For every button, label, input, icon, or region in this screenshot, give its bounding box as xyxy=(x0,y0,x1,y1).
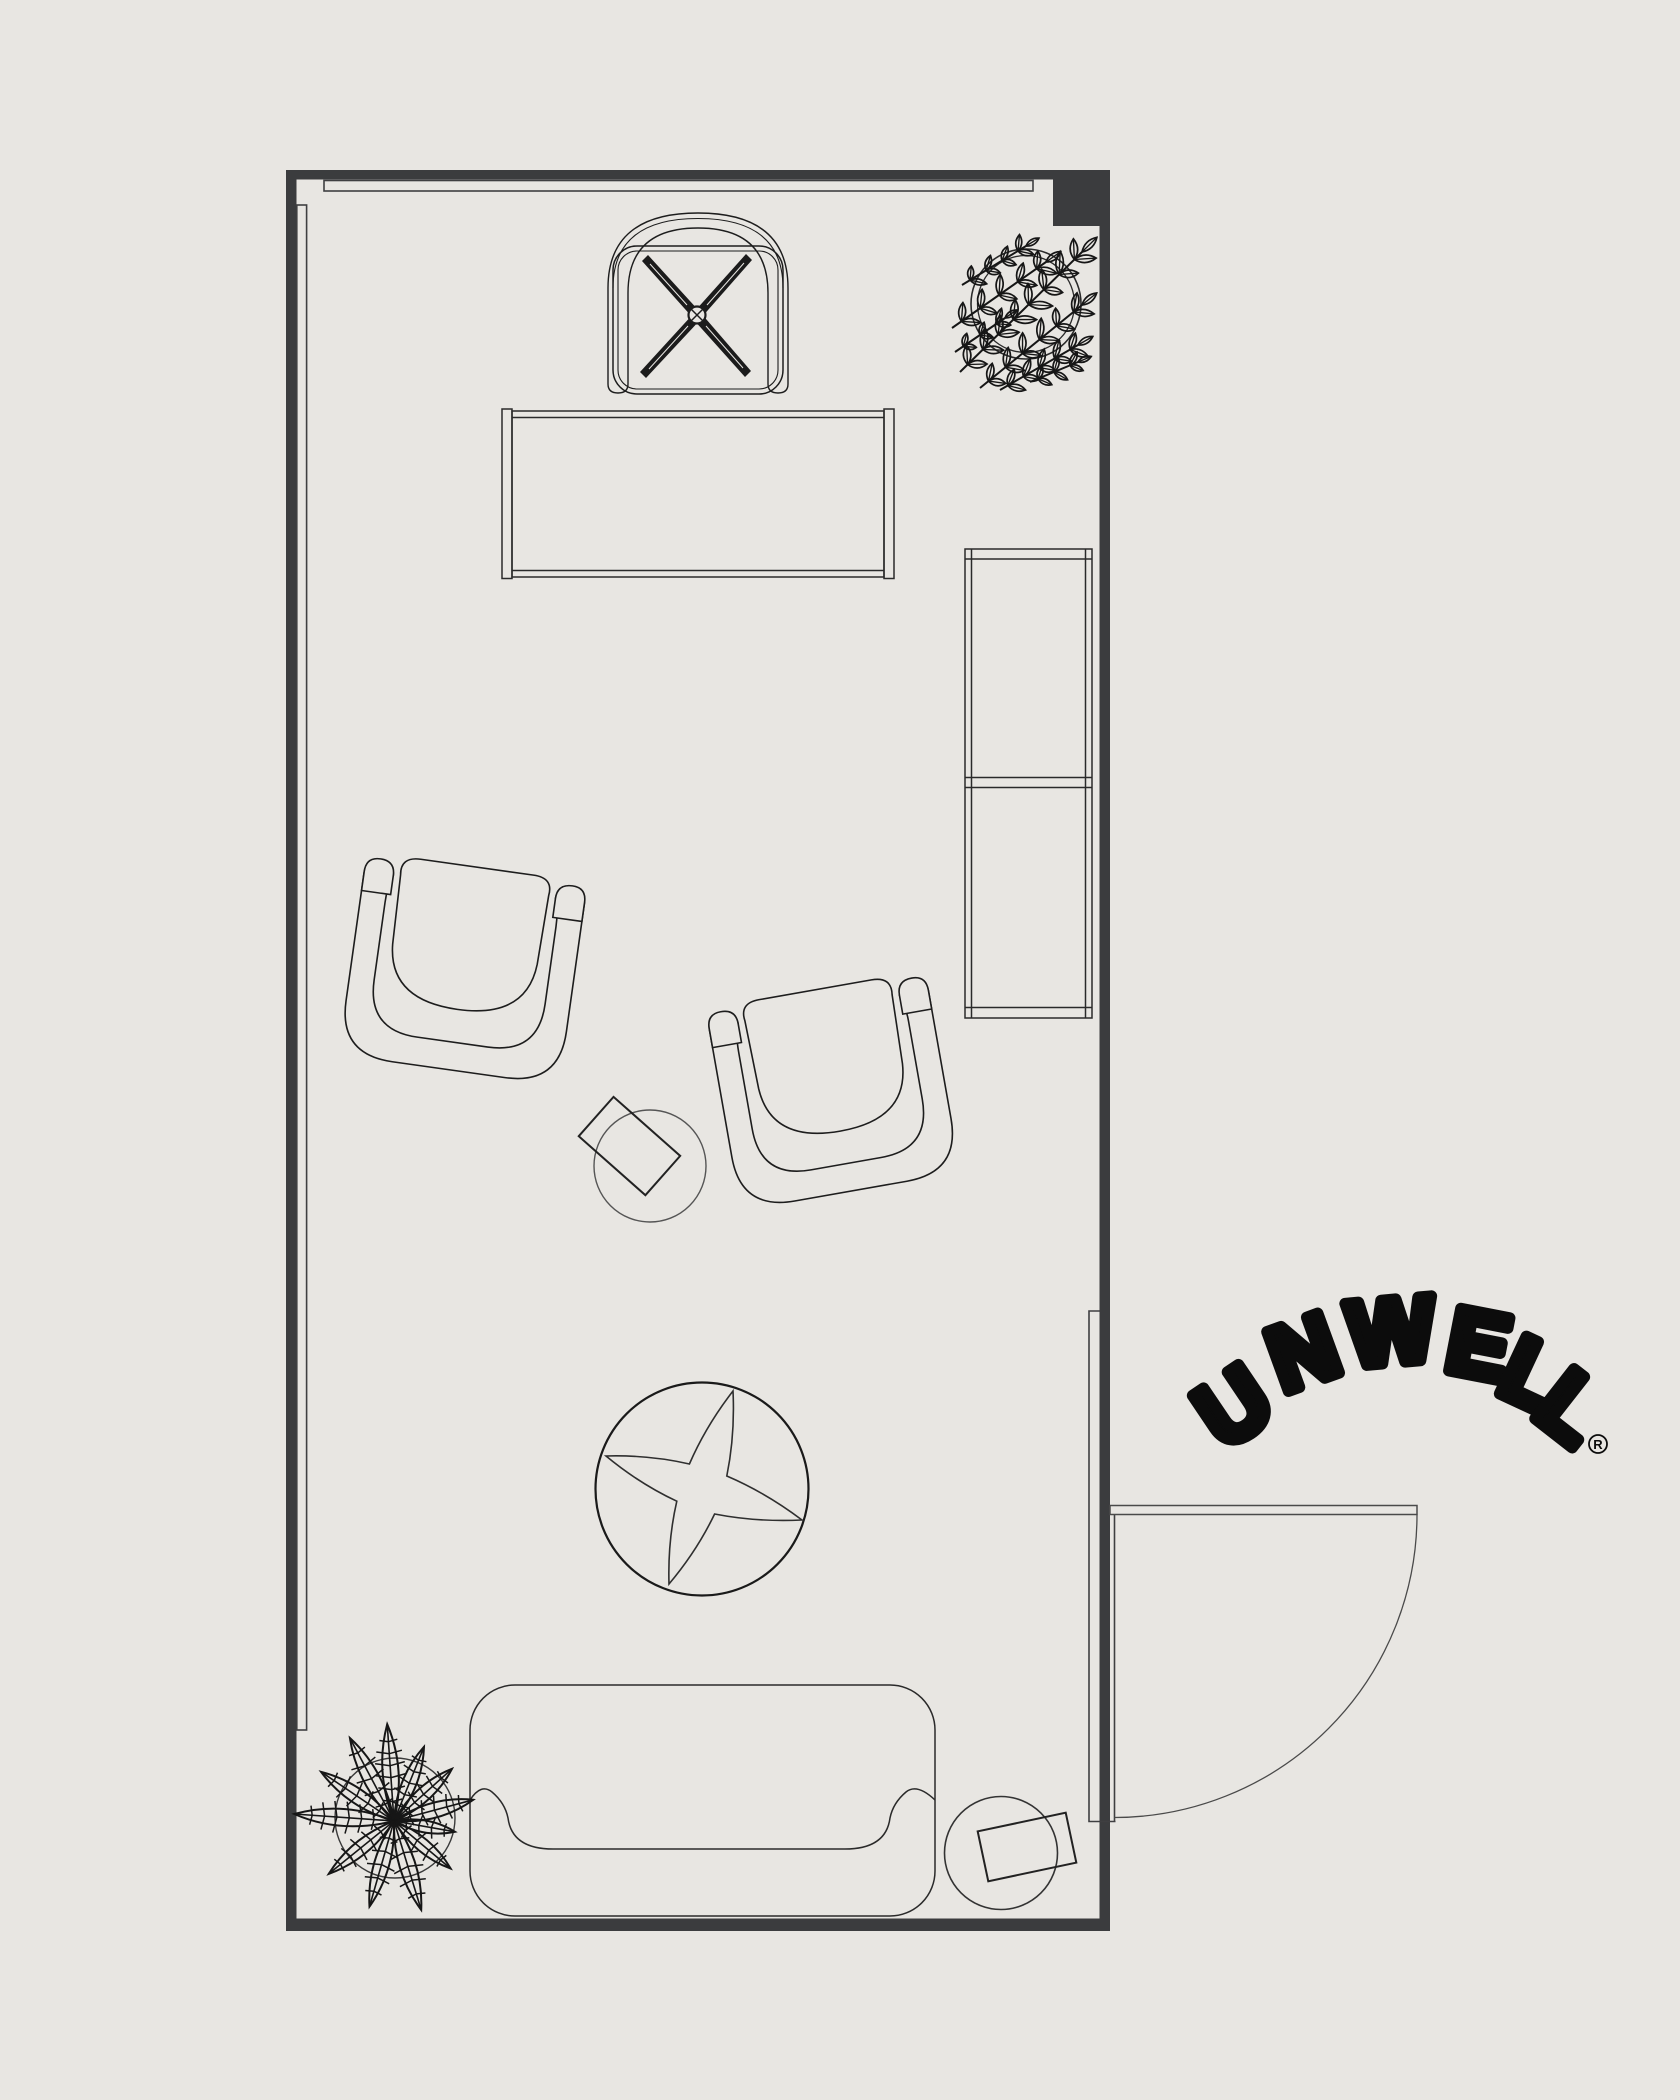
svg-text:W: W xyxy=(1343,1277,1439,1386)
svg-text:R: R xyxy=(1593,1437,1603,1452)
svg-text:N: N xyxy=(1255,1294,1352,1413)
